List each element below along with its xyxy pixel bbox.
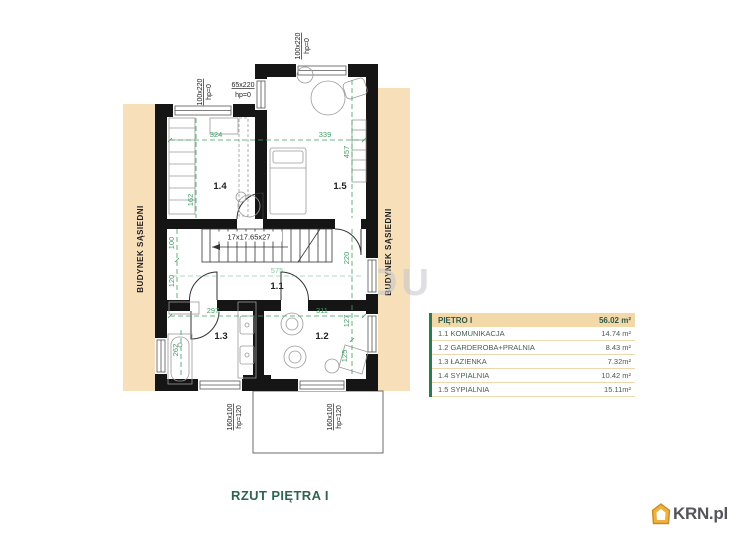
dim-457: 457 <box>342 146 351 159</box>
dim-262: 262 <box>171 344 180 357</box>
window-label-top-left: 100x220 <box>197 78 204 105</box>
neighbor-label-left: BUDYNEK SĄSIEDNI <box>136 205 145 293</box>
window-left-bath <box>155 338 167 374</box>
window-bottom-right <box>298 379 346 391</box>
legend-row: 1.1 KOMUNIKACJA 14.74 m² <box>432 327 635 341</box>
furniture-stool-14 <box>236 192 246 202</box>
staircase: 17x17.65x27 <box>202 229 332 262</box>
window-label-bottom-left-hp: hp=120 <box>236 405 243 429</box>
area-legend: PIĘTRO I 56.02 m² 1.1 KOMUNIKACJA 14.74 … <box>429 313 635 397</box>
legend-row: 1.2 GARDEROBA+PRALNIA 8.43 m² <box>432 341 635 355</box>
legend-row-area: 10.42 m² <box>601 371 631 380</box>
stairs-direction-arrow <box>212 244 220 250</box>
furniture-bed-15 <box>270 148 306 214</box>
room-label-1-4: 1.4 <box>213 181 227 192</box>
legend-row-label: 1.4 SYPIALNIA <box>438 371 489 380</box>
dim-125: 125 <box>340 350 349 363</box>
legend-row-label: 1.2 GARDEROBA+PRALNIA <box>438 343 535 352</box>
legend-row-label: 1.5 SYPIALNIA <box>438 385 489 394</box>
dim-127: 127 <box>342 315 351 328</box>
window-right-room12 <box>366 314 378 354</box>
stairs-label: 17x17.65x27 <box>228 233 271 242</box>
window-label-step-hp: hp=0 <box>235 92 251 99</box>
window-label-step: 65x220 <box>232 82 255 89</box>
legend-row: 1.3 ŁAZIENKA 7.32m² <box>432 355 635 369</box>
window-bottom-left <box>198 379 242 391</box>
window-label-bottom-right-hp: hp=120 <box>336 405 343 429</box>
dim-162: 162 <box>186 194 195 207</box>
krn-logo-icon <box>651 503 671 525</box>
furniture-table-15 <box>311 81 345 115</box>
dim-575: 575 <box>271 266 284 275</box>
legend-row: 1.4 SYPIALNIA 10.42 m² <box>432 369 635 383</box>
neighbor-band-right <box>378 88 410 391</box>
dim-100: 100 <box>167 237 176 250</box>
window-label-top-left-hp: hp=0 <box>206 84 213 100</box>
legend-row-area: 8.43 m² <box>606 343 631 352</box>
krn-logo: KRN.pl <box>651 503 728 525</box>
window-right-hall <box>366 258 378 294</box>
floorplan-page: BUDYNEK SĄSIEDNI BUDYNEK SĄSIEDNI DU <box>0 0 740 539</box>
furniture-chair-12 <box>325 359 339 373</box>
legend-row-label: 1.3 ŁAZIENKA <box>438 357 487 366</box>
window-label-top-right-hp: hp=0 <box>304 38 311 54</box>
legend-row-area: 14.74 m² <box>601 329 631 338</box>
legend-row-area: 7.32m² <box>608 357 631 366</box>
page-title: RZUT PIĘTRA I <box>190 488 370 503</box>
legend-header-label: PIĘTRO I <box>438 316 472 325</box>
window-label-bottom-left: 160x100 <box>227 403 234 430</box>
window-label-top-right: 100x220 <box>295 32 302 59</box>
room-label-1-1: 1.1 <box>270 281 284 292</box>
legend-row-area: 15.11m² <box>604 385 631 394</box>
room-label-1-2: 1.2 <box>315 331 328 342</box>
legend-row-label: 1.1 KOMUNIKACJA <box>438 329 505 338</box>
krn-logo-text: KRN.pl <box>673 504 728 524</box>
furniture-wardrobe-15 <box>352 120 366 182</box>
room-label-1-5: 1.5 <box>333 181 347 192</box>
door-arc-room15 <box>335 229 361 255</box>
floor-plan-drawing: BUDYNEK SĄSIEDNI BUDYNEK SĄSIEDNI DU <box>0 0 740 539</box>
legend-row: 1.5 SYPIALNIA 15.11m² <box>432 383 635 397</box>
window-step <box>255 79 267 110</box>
dim-220: 220 <box>342 252 351 265</box>
dim-339: 339 <box>319 130 332 139</box>
dim-297: 297 <box>207 306 220 315</box>
legend-header-area: 56.02 m² <box>599 316 631 325</box>
watermark: DU <box>370 262 433 304</box>
chimney-block <box>243 375 271 391</box>
furniture-washers-12 <box>281 313 306 368</box>
furniture-armchair-15 <box>342 77 368 100</box>
room-label-1-3: 1.3 <box>214 331 227 342</box>
dim-120: 120 <box>167 275 176 288</box>
lower-roof-outline <box>253 391 383 453</box>
dim-311: 311 <box>316 306 328 315</box>
window-top-right <box>296 64 348 77</box>
furniture-bathtub-13 <box>168 334 192 384</box>
room-labels: 1.4 1.5 1.1 1.3 1.2 <box>213 181 347 342</box>
dim-324: 324 <box>210 130 223 139</box>
legend-header: PIĘTRO I 56.02 m² <box>432 313 635 327</box>
window-label-bottom-right: 160x100 <box>327 403 334 430</box>
